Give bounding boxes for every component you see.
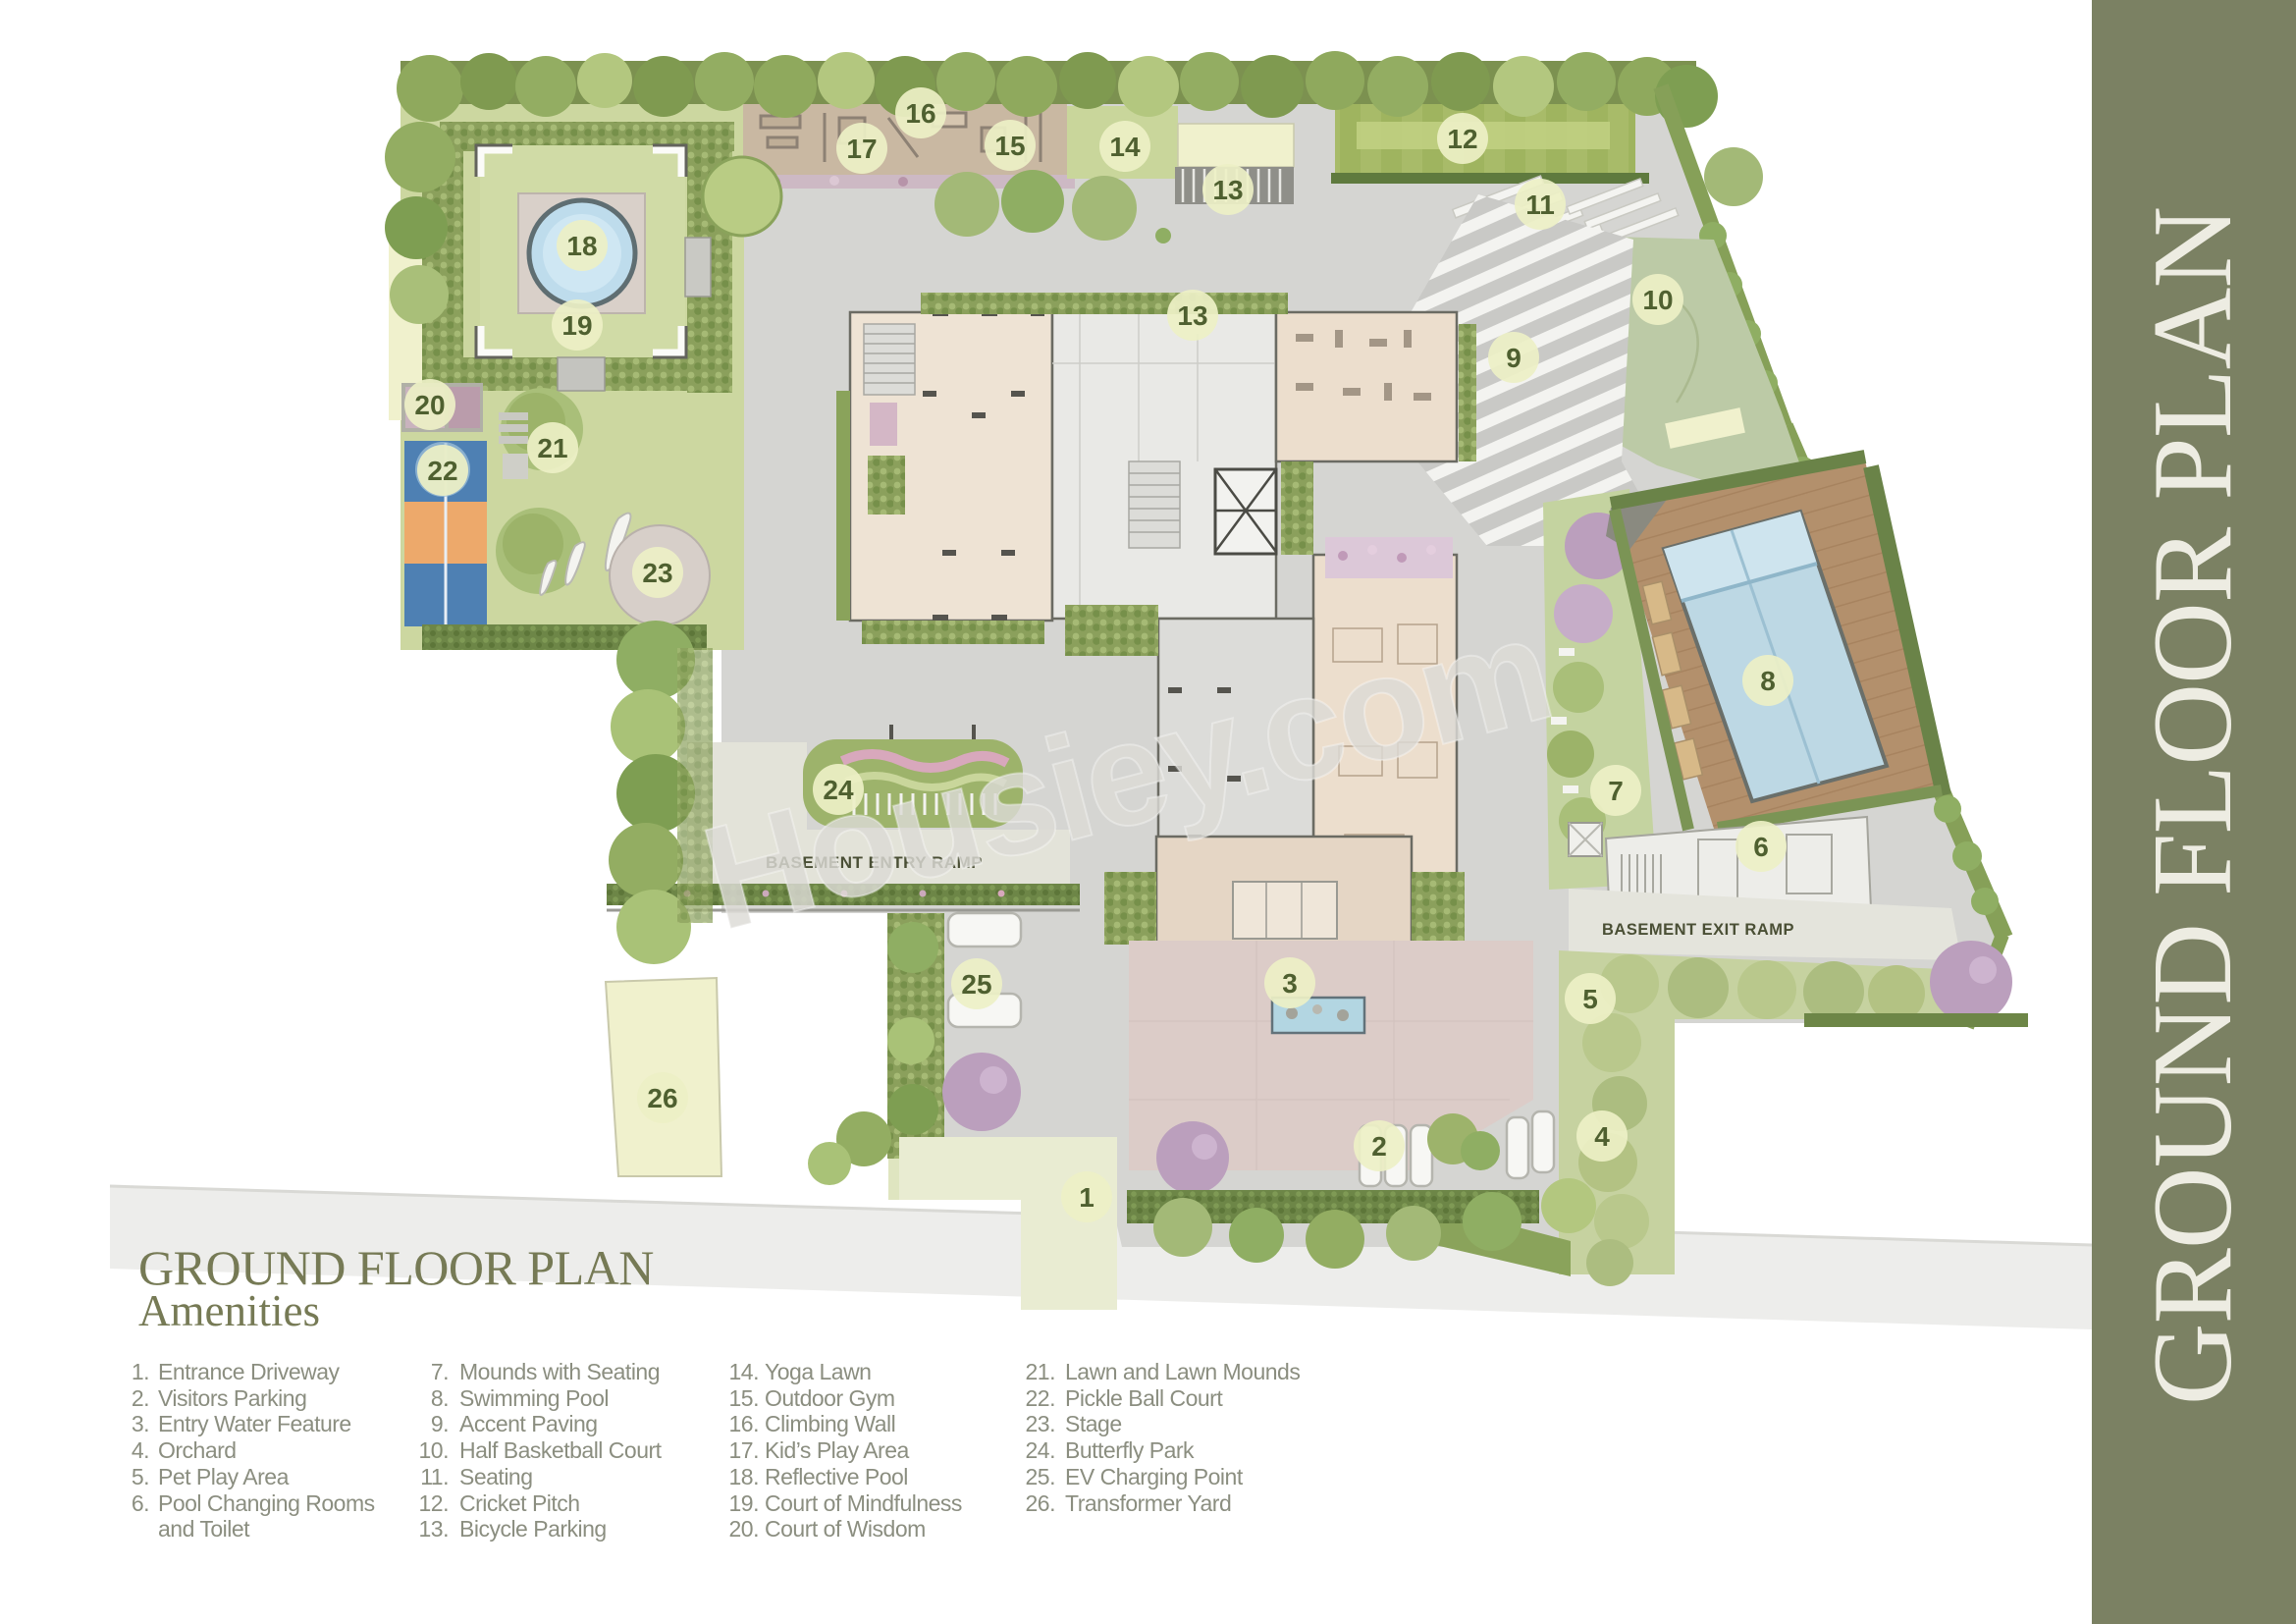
svg-text:11: 11 — [1525, 189, 1555, 220]
svg-text:21: 21 — [537, 433, 567, 463]
svg-text:BASEMENT EXIT RAMP: BASEMENT EXIT RAMP — [1602, 921, 1794, 939]
svg-text:20: 20 — [414, 390, 445, 420]
svg-text:23: 23 — [642, 558, 672, 588]
svg-text:12: 12 — [1447, 124, 1477, 154]
svg-text:22: 22 — [427, 456, 457, 486]
svg-text:13: 13 — [1212, 175, 1243, 205]
svg-text:9: 9 — [1506, 343, 1522, 373]
svg-text:5: 5 — [1582, 984, 1598, 1014]
svg-text:8: 8 — [1760, 666, 1776, 696]
svg-text:19: 19 — [561, 310, 592, 341]
svg-text:2: 2 — [1371, 1131, 1387, 1162]
svg-text:1: 1 — [1079, 1182, 1095, 1213]
svg-text:17: 17 — [846, 134, 877, 164]
svg-text:18: 18 — [566, 231, 597, 261]
svg-text:13: 13 — [1177, 300, 1207, 331]
svg-text:16: 16 — [905, 98, 935, 129]
svg-text:3: 3 — [1282, 968, 1298, 999]
svg-text:GROUND FLOOR PLAN: GROUND FLOOR PLAN — [2130, 207, 2256, 1405]
svg-text:10: 10 — [1642, 285, 1673, 315]
svg-text:26: 26 — [647, 1083, 677, 1113]
svg-text:15: 15 — [994, 131, 1025, 161]
svg-text:14: 14 — [1109, 132, 1141, 162]
svg-text:4: 4 — [1594, 1121, 1610, 1152]
svg-text:7: 7 — [1608, 776, 1624, 806]
svg-text:25: 25 — [961, 969, 991, 1000]
svg-text:6: 6 — [1753, 832, 1769, 862]
